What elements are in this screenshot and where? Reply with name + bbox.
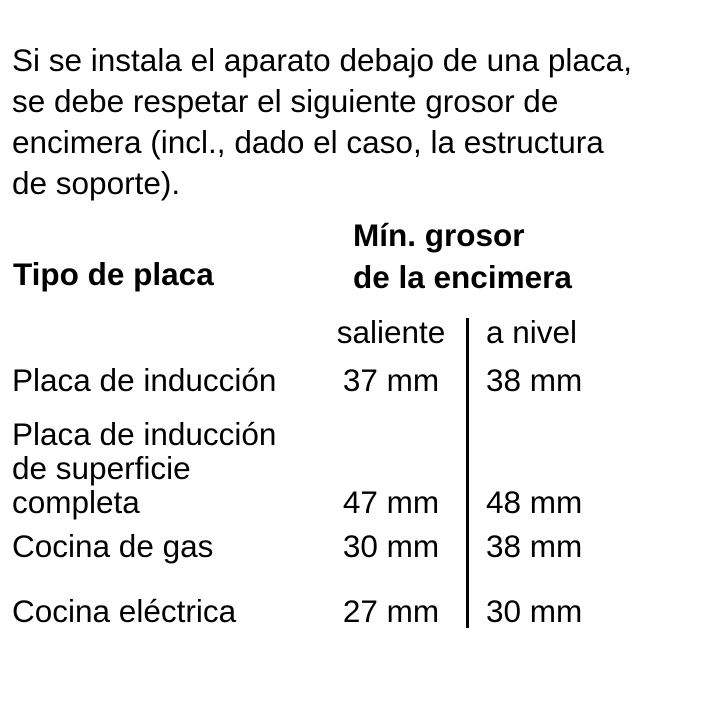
value-a-nivel-electric: 30 mm (486, 594, 582, 628)
value-saliente-electric: 27 mm (331, 594, 451, 628)
row-label-electric: Cocina eléctrica (12, 594, 236, 628)
row-label-gas: Cocina de gas (12, 529, 213, 563)
value-saliente-full-surface-induction: 47 mm (331, 485, 451, 519)
value-a-nivel-induction: 38 mm (486, 363, 582, 397)
intro-paragraph: Si se instala el aparato debajo de una p… (12, 40, 700, 204)
column-header-thickness: Mín. grosor de la encimera (353, 214, 572, 298)
column-header-type: Tipo de placa (13, 253, 214, 295)
column-divider-line (466, 318, 469, 628)
value-saliente-gas: 30 mm (331, 529, 451, 563)
manual-page: Si se instala el aparato debajo de una p… (0, 0, 703, 703)
subcolumn-header-a-nivel: a nivel (486, 315, 577, 349)
subcolumn-header-saliente: saliente (331, 315, 451, 349)
value-a-nivel-gas: 38 mm (486, 529, 582, 563)
value-a-nivel-full-surface-induction: 48 mm (486, 485, 582, 519)
value-saliente-induction: 37 mm (331, 363, 451, 397)
row-label-induction: Placa de inducción (12, 363, 276, 397)
row-label-full-surface-induction: Placa de inducción de superficie complet… (12, 417, 276, 519)
